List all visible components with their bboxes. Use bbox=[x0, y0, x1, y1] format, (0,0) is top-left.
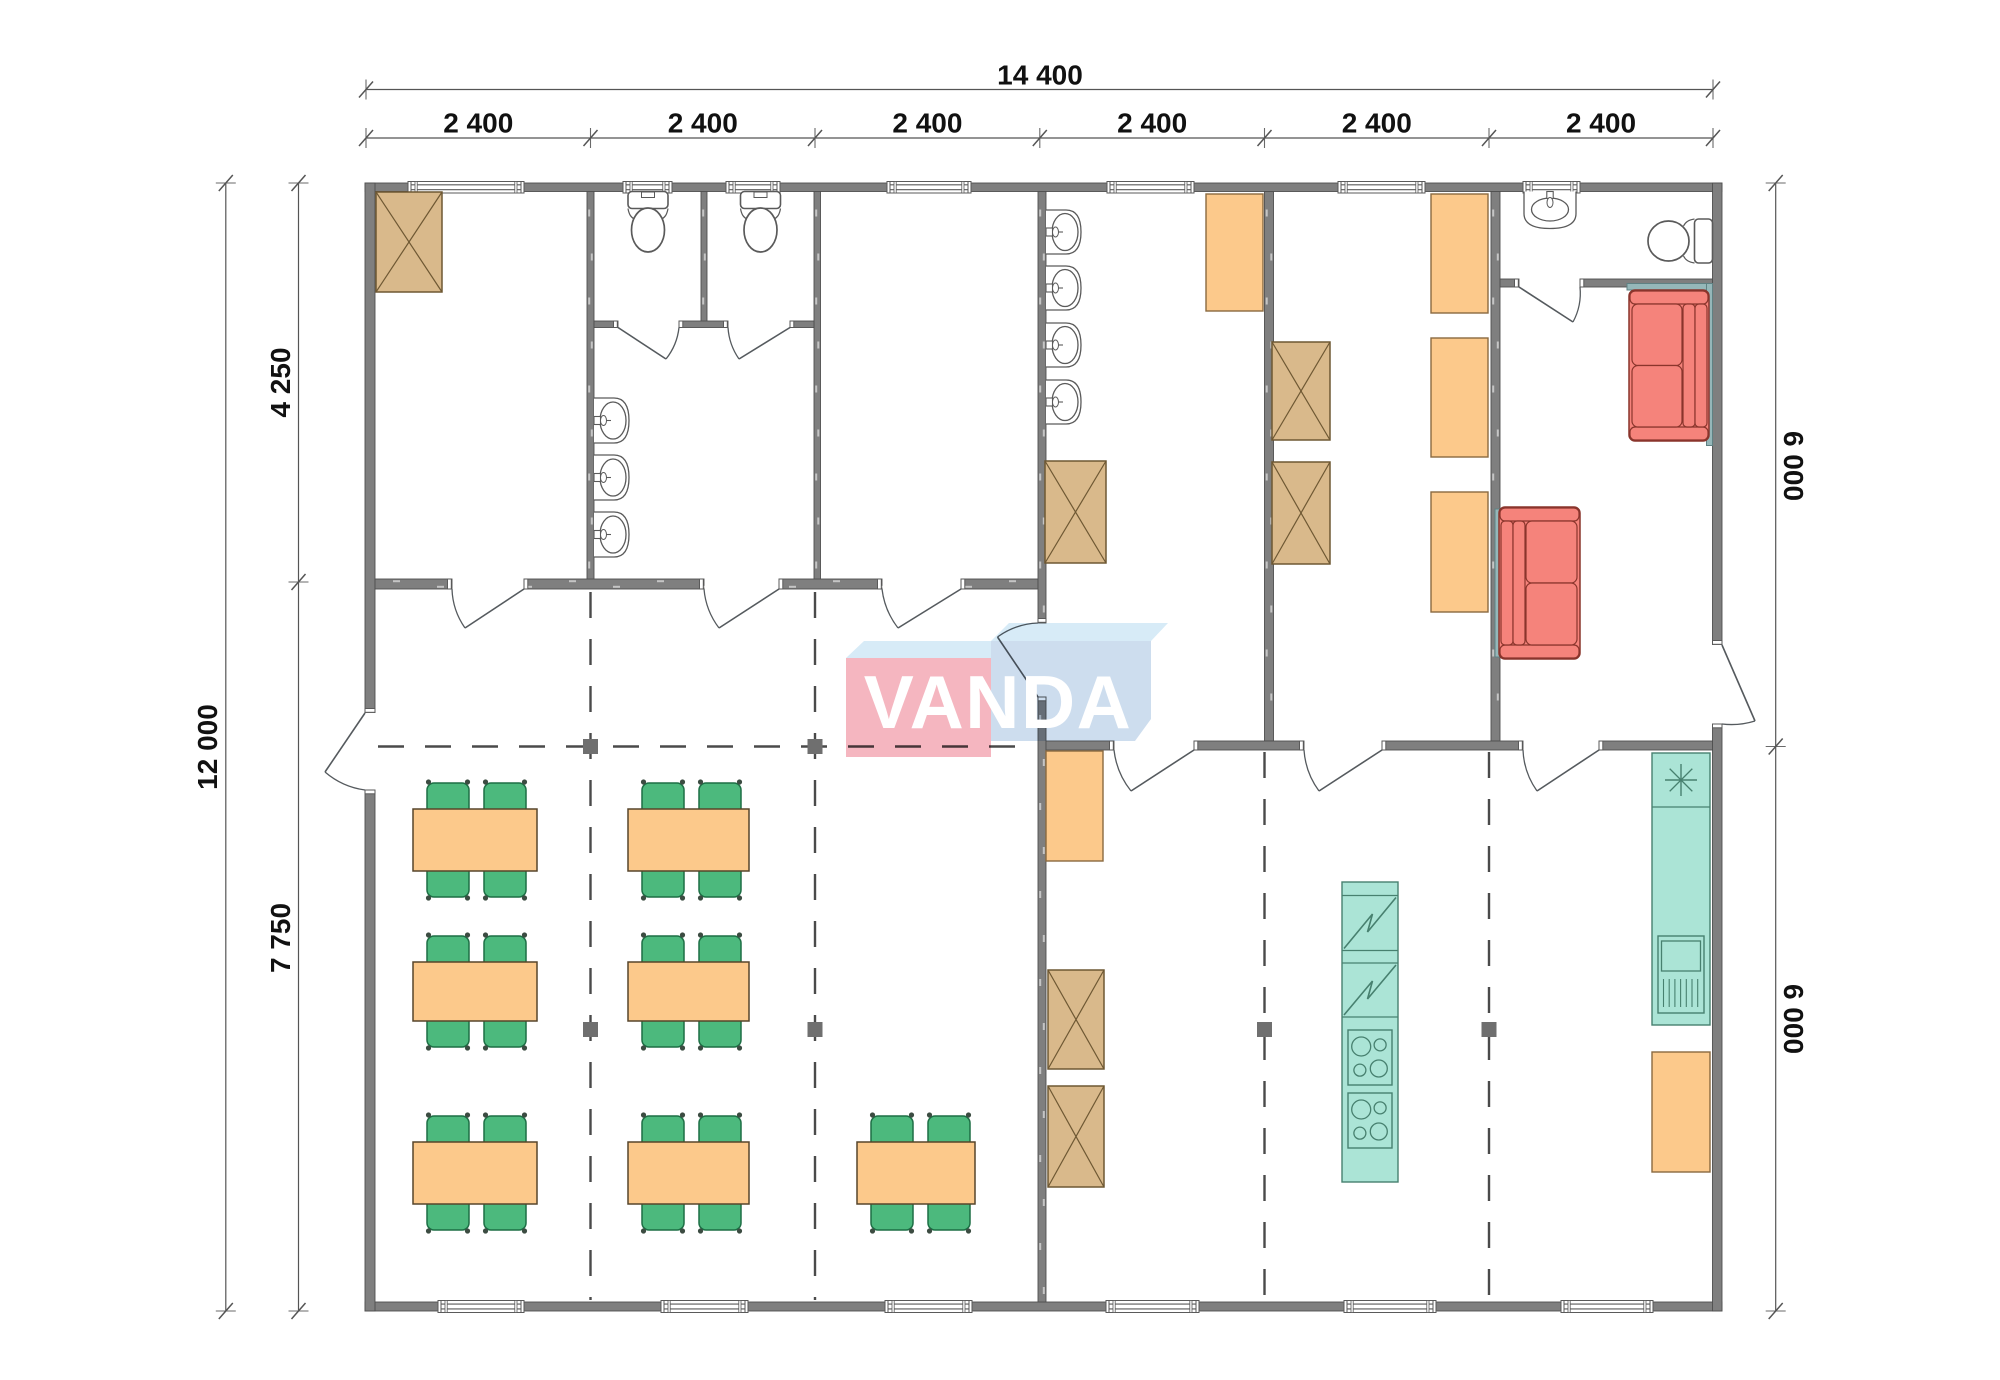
svg-text:4 250: 4 250 bbox=[265, 347, 296, 417]
svg-text:VANDA: VANDA bbox=[864, 660, 1133, 744]
svg-text:2 400: 2 400 bbox=[1566, 108, 1636, 139]
svg-text:2 400: 2 400 bbox=[1342, 108, 1412, 139]
svg-text:6 000: 6 000 bbox=[1778, 984, 1809, 1054]
svg-text:2 400: 2 400 bbox=[443, 108, 513, 139]
svg-text:7 750: 7 750 bbox=[265, 903, 296, 973]
svg-text:14 400: 14 400 bbox=[997, 60, 1083, 91]
svg-text:2 400: 2 400 bbox=[668, 108, 738, 139]
svg-text:12 000: 12 000 bbox=[192, 704, 223, 790]
svg-text:2 400: 2 400 bbox=[892, 108, 962, 139]
svg-text:6 000: 6 000 bbox=[1778, 431, 1809, 501]
svg-text:2 400: 2 400 bbox=[1117, 108, 1187, 139]
